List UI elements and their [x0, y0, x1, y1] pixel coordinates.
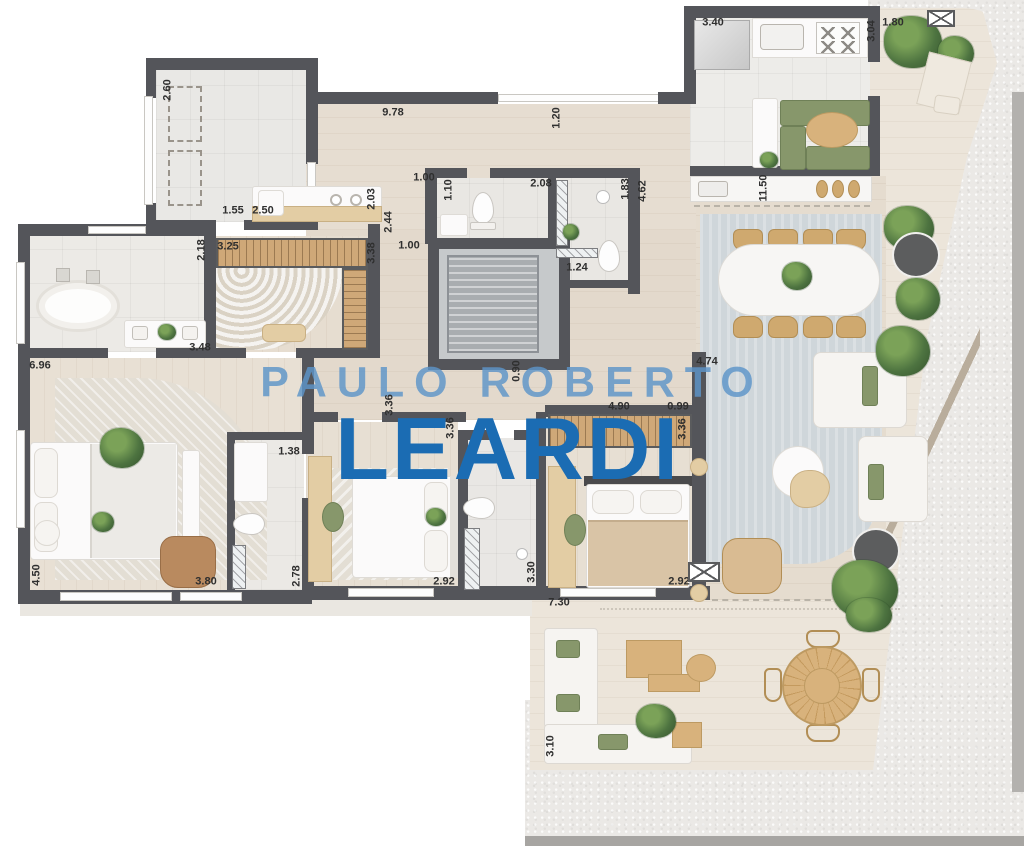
shower-screen [464, 528, 480, 590]
bar-stool [832, 180, 844, 198]
outdoor-chair [806, 724, 840, 742]
plant [92, 512, 114, 532]
laundry-sink [258, 190, 284, 216]
plant [158, 324, 176, 340]
dining-chair [836, 316, 866, 338]
island-sink [698, 181, 728, 197]
nightstand [690, 584, 708, 602]
toilet [598, 240, 620, 272]
plant [100, 428, 144, 468]
chaise-throw [868, 464, 884, 500]
breakfast-sofa [780, 126, 806, 170]
window [144, 96, 153, 205]
plant [846, 598, 892, 632]
plant [426, 508, 446, 526]
tray [933, 94, 961, 115]
wall [227, 432, 312, 440]
armchair [160, 536, 216, 588]
nightstand [690, 458, 708, 476]
kitchen-sink [760, 24, 804, 50]
window [498, 94, 660, 102]
wall [684, 6, 880, 18]
toilet [233, 513, 265, 535]
plant [782, 262, 812, 290]
elevator-cab [447, 255, 539, 353]
round-planter [892, 232, 940, 278]
site-edge-right [1012, 92, 1024, 792]
window [16, 430, 25, 528]
toilet [463, 497, 495, 519]
dining-chair [768, 316, 798, 338]
outdoor-coffee-table [626, 640, 682, 678]
wall [306, 92, 498, 104]
wall [146, 58, 156, 98]
window [88, 226, 146, 234]
wardrobe [342, 268, 368, 350]
wall [425, 168, 437, 244]
bed-blanket [588, 520, 688, 586]
shower-screen [556, 248, 598, 258]
wardrobe [216, 238, 368, 268]
dining-chair [733, 316, 763, 338]
floor-drain-icon [86, 270, 100, 284]
future-appliance-outline [168, 150, 202, 206]
chaise-throw [862, 366, 878, 406]
closet-bench [262, 324, 306, 342]
breakfast-table [806, 112, 858, 148]
outdoor-side-table [686, 654, 716, 682]
wall [868, 6, 880, 62]
washer-icon [350, 194, 362, 206]
plant [896, 278, 940, 320]
window [60, 592, 172, 601]
bathtub [36, 280, 120, 332]
site-edge-bottom [525, 836, 1024, 846]
wall [425, 168, 467, 178]
bar-stool [816, 180, 828, 198]
sink-icon [132, 326, 148, 340]
desk-chair [564, 514, 586, 546]
bed-bench [182, 450, 200, 550]
shower-head-icon [596, 190, 610, 204]
wall [306, 412, 338, 422]
elevator-shaft [428, 238, 570, 370]
sink-icon [182, 326, 198, 340]
outdoor-chair [862, 668, 880, 702]
window [180, 592, 242, 601]
wall [306, 58, 318, 164]
sofa-cushion [556, 694, 580, 712]
dining-chair [803, 316, 833, 338]
watermark-line2: LEARDI [335, 398, 681, 500]
wall [490, 168, 640, 178]
shower-screen [232, 545, 246, 589]
pouf [34, 520, 60, 546]
wall [368, 224, 380, 358]
plant [636, 704, 676, 738]
floor-plan: PAULO ROBERTO LEARDI 2.609.781.203.403.0… [0, 0, 1024, 847]
window [16, 262, 25, 344]
plant [876, 326, 930, 376]
wall [28, 348, 108, 358]
cooktop-icon [816, 22, 860, 54]
outdoor-dining-table-center [804, 668, 840, 704]
breakfast-sofa [806, 146, 870, 170]
armchair [722, 538, 782, 594]
pillow [34, 448, 58, 498]
sofa-cushion [598, 734, 628, 750]
fridge [694, 20, 750, 70]
outdoor-side-table [672, 722, 702, 748]
window [348, 588, 434, 597]
shower-head-icon [516, 548, 528, 560]
outdoor-chair [764, 668, 782, 702]
window [560, 588, 656, 597]
plant [760, 152, 778, 168]
pillow [424, 530, 448, 572]
wall [204, 348, 246, 358]
sofa-cushion [556, 640, 580, 658]
wall [146, 58, 316, 70]
wall [628, 168, 640, 294]
bar-stool [848, 180, 860, 198]
wall [692, 405, 706, 598]
toilet-tank [470, 222, 496, 230]
washer-icon [330, 194, 342, 206]
future-appliance-outline [168, 86, 202, 142]
wc-counter [234, 442, 268, 502]
desk-chair [322, 502, 344, 532]
kitchen-living-transition [694, 205, 870, 207]
plant [563, 224, 579, 240]
floor-drain-icon [56, 268, 70, 282]
vanity [440, 214, 468, 236]
toilet [472, 192, 494, 224]
